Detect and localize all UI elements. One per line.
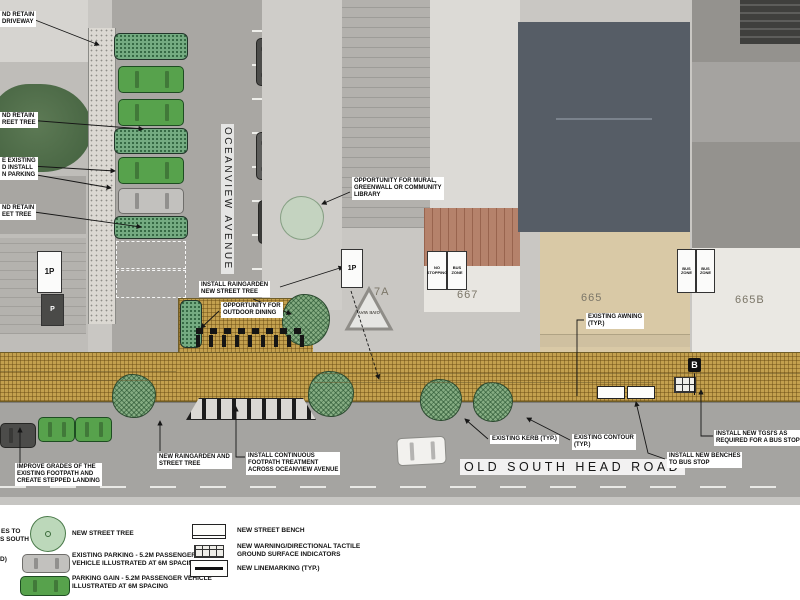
callout-line: NEW RAINGARDEN AND — [159, 454, 230, 461]
callout-benches: INSTALL NEW BENCHESTO BUS STOP — [667, 452, 742, 468]
callout-outdoor-dining: OPPORTUNITY FOROUTDOOR DINING — [221, 302, 283, 318]
callout-continuous-footpath: INSTALL CONTINUOUSFOOTPATH TREATMENTACRO… — [246, 452, 340, 475]
callout-line: INSTALL CONTINUOUS — [248, 453, 338, 460]
callout-line: INSTALL NEW BENCHES — [669, 453, 740, 460]
no-stopping-sign: NO STOPPING — [427, 251, 447, 290]
callout-line: OPPORTUNITY FOR MURAL, — [354, 178, 442, 185]
streetscape-plan-sheet: 7A 667 665 665B — [0, 0, 800, 600]
callout-line: INSTALL RAINGARDEN — [201, 282, 268, 289]
legend-line: GROUND SURFACE INDICATORS — [237, 551, 360, 559]
legend-label-existing-parking: EXISTING PARKING - 5.2M PASSENGERVEHICLE… — [72, 552, 198, 567]
bench-slat — [193, 535, 225, 536]
bus-zone-sign: BUS ZONE — [447, 251, 467, 290]
callout-line: OUTDOOR DINING — [223, 310, 281, 317]
callout-line: EXISTING AWNING — [588, 314, 642, 321]
legend-existing-car-icon — [22, 554, 70, 573]
legend-parking-gain-car-icon — [20, 576, 70, 596]
callout-line: OPPORTUNITY FOR — [223, 303, 281, 310]
legend-line: NEW WARNING/DIRECTIONAL TACTILE — [237, 543, 360, 551]
legend-label-new-street-tree: NEW STREET TREE — [72, 530, 134, 538]
bus-zone-sign: BUS ZONE — [677, 249, 696, 293]
legend-line: NEW STREET TREE — [72, 530, 134, 538]
edge-label-retain-tree-2: ND RETAINEET TREE — [0, 204, 36, 220]
edge-label-line: D INSTALL — [2, 165, 36, 172]
site-plan-aerial: 7A 667 665 665B — [0, 0, 800, 505]
legend-line: ILLUSTRATED AT 6M SPACING — [72, 583, 212, 591]
legend-label-bench: NEW STREET BENCH — [237, 527, 305, 535]
edge-label-line: ND RETAIN — [2, 205, 34, 212]
legend-bench-icon — [192, 524, 226, 539]
bus-zone-sign: BUS ZONE — [696, 249, 715, 293]
edge-label-line: ND RETAIN — [2, 12, 34, 19]
callout-line: (TYP.) — [588, 321, 642, 328]
edge-label-line: DRIVEWAY — [2, 19, 34, 26]
car-window — [54, 580, 58, 592]
linemarking-stroke — [195, 567, 223, 570]
legend-tactile-icon — [194, 545, 224, 558]
callout-existing-kerb: EXISTING KERB (TYP.) — [490, 435, 559, 444]
callout-improve-grades: IMPROVE GRADES OF THEEXISTING FOOTPATH A… — [15, 463, 102, 486]
edge-label-line: REET TREE — [2, 120, 36, 127]
legend-line: NEW LINEMARKING (TYP.) — [237, 565, 320, 573]
legend-linemarking-icon — [190, 560, 228, 577]
legend-label-parking-gain: PARKING GAIN - 5.2M PASSENGER VEHICLEILL… — [72, 575, 212, 590]
callout-line: EXISTING KERB (TYP.) — [492, 436, 557, 443]
callout-line: LIBRARY — [354, 192, 442, 199]
callout-line: INSTALL NEW TGSI'S AS — [716, 431, 800, 438]
callout-line: REQUIRED FOR A BUS STOP — [716, 438, 800, 445]
legend-fragment: S SOUTH — [0, 536, 29, 544]
edge-label-retain-driveway: ND RETAINDRIVEWAY — [0, 11, 36, 27]
callout-line: FOOTPATH TREATMENT — [248, 460, 338, 467]
legend-tree-dot — [45, 531, 51, 537]
callout-line: STREET TREE — [159, 461, 230, 468]
parking-sign-p: P — [41, 294, 64, 326]
callout-install-raingarden: INSTALL RAINGARDENNEW STREET TREE — [199, 281, 270, 297]
car-window — [55, 558, 59, 570]
legend-line: EXISTING PARKING - 5.2M PASSENGER — [72, 552, 198, 560]
callout-line: NEW STREET TREE — [201, 289, 268, 296]
callout-line: IMPROVE GRADES OF THE — [17, 464, 100, 471]
edge-label-line: N PARKING — [2, 172, 36, 179]
callout-existing-contour: EXISTING CONTOUR(TYP.) — [572, 434, 636, 450]
callout-line: EXISTING CONTOUR — [574, 435, 634, 442]
car-window — [34, 558, 38, 570]
callout-line: GREENWALL OR COMMUNITY — [354, 185, 442, 192]
parking-sign-1p: 1P — [37, 251, 62, 293]
legend-label-linemarking: NEW LINEMARKING (TYP.) — [237, 565, 320, 573]
edge-label-retain-tree: ND RETAINREET TREE — [0, 112, 38, 128]
edge-label-line: EET TREE — [2, 212, 34, 219]
bus-stop-sign: B — [688, 358, 701, 372]
legend-fragment: D) — [0, 556, 7, 564]
callout-tgsi: INSTALL NEW TGSI'S ASREQUIRED FOR A BUS … — [714, 430, 800, 446]
callout-new-raingarden: NEW RAINGARDEN ANDSTREET TREE — [157, 453, 232, 469]
callout-line: CREATE STEPPED LANDING — [17, 478, 100, 485]
legend-panel: NEW STREET TREE EXISTING PARKING - 5.2M … — [0, 505, 800, 600]
callout-existing-awning: EXISTING AWNING(TYP.) — [586, 313, 644, 329]
callout-line: EXISTING FOOTPATH AND — [17, 471, 100, 478]
callout-line: ACROSS OCEANVIEW AVENUE — [248, 467, 338, 474]
legend-line: VEHICLE ILLUSTRATED AT 6M SPACING — [72, 560, 198, 568]
parking-sign-1p: 1P — [341, 249, 363, 288]
car-window — [33, 580, 37, 592]
legend-fragment: ES TO — [1, 528, 20, 536]
callout-line: TO BUS STOP — [669, 460, 740, 467]
callout-mural: OPPORTUNITY FOR MURAL,GREENWALL OR COMMU… — [352, 177, 444, 200]
legend-label-tactile: NEW WARNING/DIRECTIONAL TACTILEGROUND SU… — [237, 543, 360, 558]
edge-label-line: ND RETAIN — [2, 113, 36, 120]
callout-line: (TYP.) — [574, 442, 634, 449]
legend-line: NEW STREET BENCH — [237, 527, 305, 535]
edge-label-line: E EXISTING — [2, 158, 36, 165]
edge-label-install-parking: E EXISTINGD INSTALLN PARKING — [0, 157, 38, 180]
